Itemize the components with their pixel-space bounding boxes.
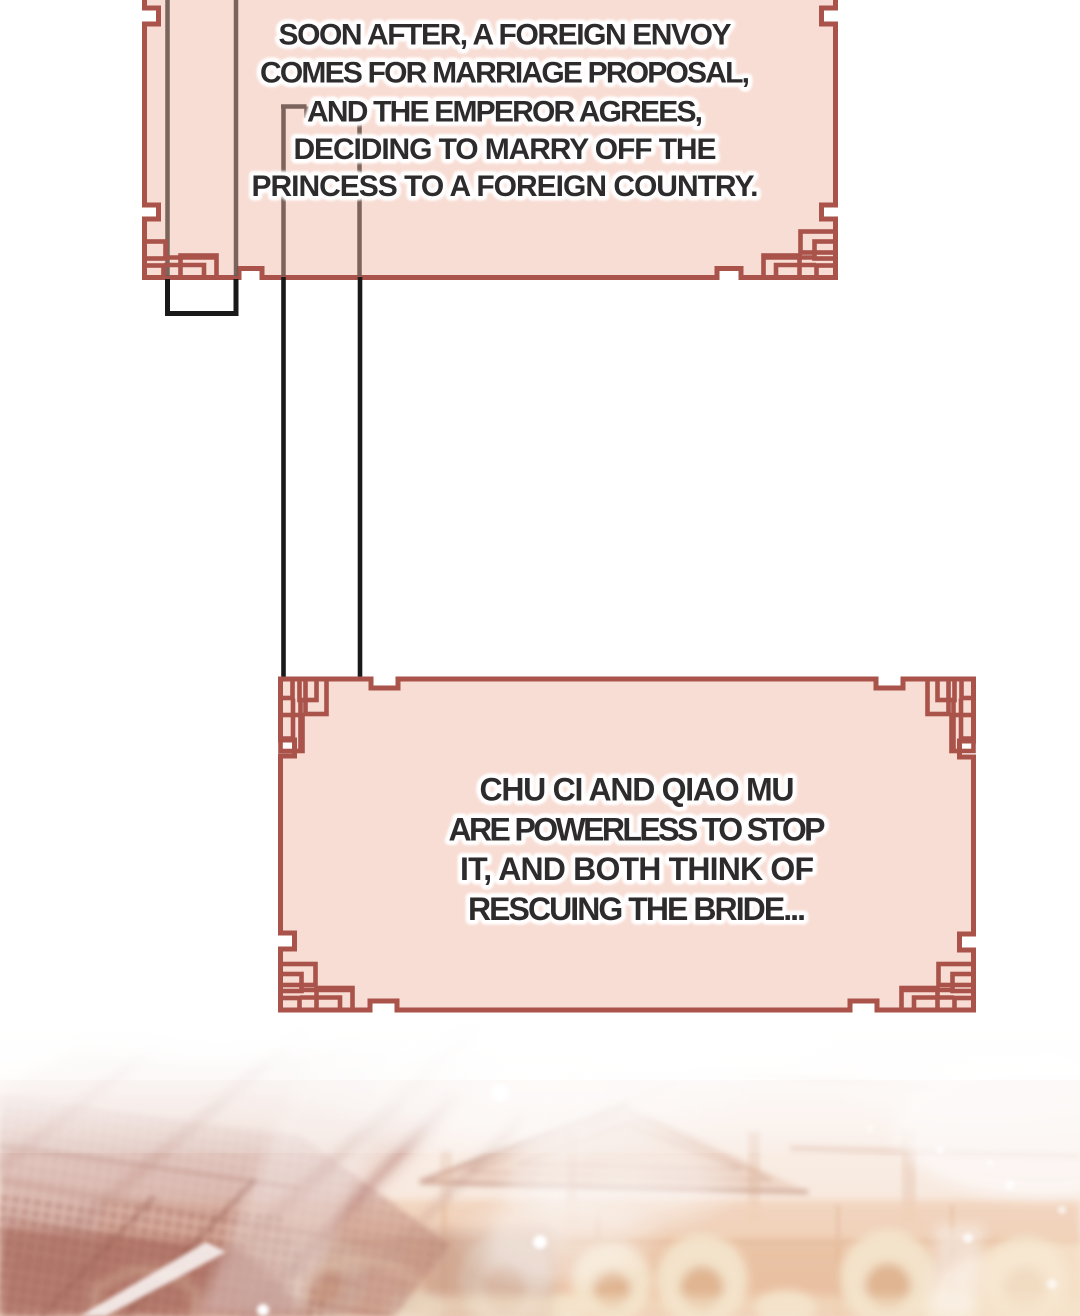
svg-text:IT, AND BOTH THINK OF: IT, AND BOTH THINK OF xyxy=(460,851,814,887)
svg-text:COMES FOR MARRIAGE PROPOSAL,: COMES FOR MARRIAGE PROPOSAL, xyxy=(260,57,750,90)
svg-text:PRINCESS TO A FOREIGN COUNTRY.: PRINCESS TO A FOREIGN COUNTRY. xyxy=(252,170,759,203)
svg-text:DECIDING TO MARRY OFF THE: DECIDING TO MARRY OFF THE xyxy=(294,133,717,166)
svg-text:SOON AFTER, A FOREIGN ENVOY: SOON AFTER, A FOREIGN ENVOY xyxy=(279,19,732,52)
svg-text:CHU CI AND QIAO MU: CHU CI AND QIAO MU xyxy=(480,772,795,808)
svg-text:RESCUING THE BRIDE...: RESCUING THE BRIDE... xyxy=(468,891,806,927)
svg-text:ARE POWERLESS TO STOP: ARE POWERLESS TO STOP xyxy=(449,812,826,848)
svg-text:AND THE EMPEROR AGREES,: AND THE EMPEROR AGREES, xyxy=(307,96,703,129)
